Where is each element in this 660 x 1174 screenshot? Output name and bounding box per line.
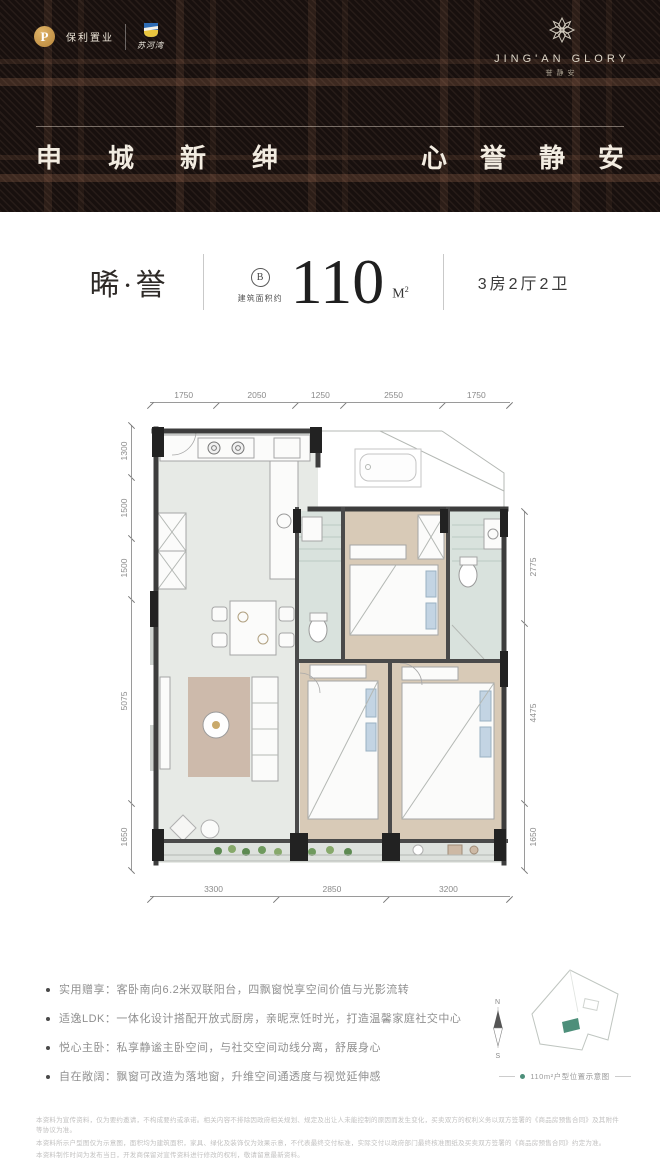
title-divider: [443, 254, 444, 310]
dim-label: 5075: [119, 692, 129, 711]
dim-label: 2550: [344, 390, 442, 400]
slogan-left: 申城新绅: [36, 138, 324, 175]
dim-label: 1650: [119, 827, 129, 846]
site-miniplan: N S 110m²户型位置示意图: [478, 952, 652, 1082]
feature-text: 悦心主卧：私享静谧主卧空间，与社交空间动线分离，舒展身心: [59, 1041, 381, 1056]
bullet-icon: [46, 1017, 50, 1021]
disclaimer-line: 本资料为宣传资料，仅为要约邀请，不构成要约或承诺。相关内容不排除因政府相关规划、…: [36, 1116, 624, 1137]
disclaimer: 本资料为宣传资料，仅为要约邀请，不构成要约或承诺。相关内容不排除因政府相关规划、…: [36, 1116, 624, 1164]
title-divider: [203, 254, 204, 310]
chair: [279, 633, 294, 647]
dims-top: 1750 2050 1250 2550 1750: [150, 387, 510, 403]
dim-label: 1750: [443, 390, 510, 400]
compass-icon: N S: [494, 999, 503, 1060]
feature-item: 实用赠享：客卧南向6.2米双联阳台，四飘窗悦享空间价值与光影流转: [46, 983, 476, 998]
partner-logo-label: 苏河湾: [137, 40, 164, 51]
bedroom-master: [400, 663, 494, 819]
features-list: 实用赠享：客卧南向6.2米双联阳台，四飘窗悦享空间价值与光影流转 适逸LDK：一…: [46, 983, 476, 1098]
chair: [279, 607, 294, 621]
disclaimer-line: 本资料制作时间为发布当日，开发商保留对宣传资料进行修改的权利，敬请留意最新资料。: [36, 1151, 624, 1161]
poly-logo-label: 保利置业: [66, 29, 114, 44]
vanity: [302, 517, 322, 541]
layout-spec: 3房2厅2卫: [478, 270, 571, 294]
chair: [212, 607, 227, 621]
feature-text: 适逸LDK：一体化设计搭配开放式厨房，亲昵烹饪时光，打造温馨家庭社交中心: [59, 1012, 461, 1027]
dim-label: 2050: [217, 390, 296, 400]
site-plan-svg: N S: [480, 952, 650, 1064]
medallion-icon: [548, 16, 576, 44]
area-label: 建筑面积约: [238, 293, 283, 304]
slogan-right: 心誉静安: [421, 138, 657, 175]
dim-label: 2775: [528, 558, 538, 577]
brand-name: JING'AN GLORY: [492, 53, 632, 65]
dim-label: 1750: [150, 390, 217, 400]
caption-text: 110m²户型位置示意图: [530, 1071, 609, 1082]
title-row: 晞·誉 B 建筑面积约 110 M2 3房2厅2卫: [0, 246, 660, 318]
shield-icon: [143, 22, 159, 38]
dim-label: 3200: [387, 884, 510, 894]
dims-right: 2775 4475 1650: [524, 511, 540, 870]
dim-label: 1300: [119, 442, 129, 461]
dim-label: 1250: [296, 390, 344, 400]
dim-label: 4475: [528, 704, 538, 723]
site-outline: [532, 970, 618, 1050]
feature-item: 自在敞阔：飘窗可改造为落地窗，升维空间通透度与视觉延伸感: [46, 1070, 476, 1085]
disclaimer-line: 本资料所示户型图仅为示意图，面积均为建筑面积，家具、绿化及装饰仅为效果示意，不代…: [36, 1139, 624, 1149]
brand-divider: [125, 24, 126, 50]
area-group: B 建筑面积约 110 M2: [238, 253, 409, 312]
dim-label: 1650: [528, 827, 538, 846]
product-name: 晞·誉: [90, 260, 169, 304]
floorplan-area: 1750 2050 1250 2550 1750 1300 1500 1500 …: [0, 375, 660, 935]
bullet-icon: [46, 1075, 50, 1079]
dresser: [310, 665, 366, 678]
bathtub: [360, 454, 416, 481]
dining-table: [230, 601, 276, 655]
void-area: [318, 431, 504, 509]
bedroom-middle: [300, 665, 378, 819]
pouf: [201, 820, 219, 838]
bullet-icon: [46, 1046, 50, 1050]
svg-text:N: N: [495, 999, 500, 1006]
dims-left: 1300 1500 1500 5075 1650: [116, 425, 132, 870]
slogan-row: 申城新绅 心誉静安: [36, 126, 624, 175]
toilet-icon: [309, 618, 327, 642]
sink: [274, 438, 300, 458]
feature-text: 自在敞阔：飘窗可改造为落地窗，升维空间通透度与视觉延伸感: [59, 1070, 381, 1085]
brand-name-cn: 誉静安: [492, 68, 632, 78]
dim-label: 2850: [277, 884, 387, 894]
area-unit: M2: [392, 285, 408, 303]
legend-dot-icon: [520, 1074, 525, 1079]
caption-rule: [615, 1076, 631, 1077]
dresser: [350, 545, 406, 559]
stove-icon: [198, 438, 254, 458]
dim-label: 1500: [119, 498, 129, 517]
brand-right: JING'AN GLORY 誉静安: [492, 16, 632, 78]
feature-item: 悦心主卧：私享静谧主卧空间，与社交空间动线分离，舒展身心: [46, 1041, 476, 1056]
miniplan-caption: 110m²户型位置示意图: [478, 1071, 652, 1082]
vanity: [484, 519, 502, 549]
dim-label: 3300: [150, 884, 277, 894]
bullet-icon: [46, 988, 50, 992]
dim-label: 1500: [119, 559, 129, 578]
chair: [212, 633, 227, 647]
svg-text:S: S: [496, 1053, 501, 1060]
tv-cabinet: [160, 677, 170, 769]
toilet-icon: [459, 563, 477, 587]
unit-badge: B: [251, 268, 270, 287]
desk: [402, 667, 458, 680]
feature-text: 实用赠享：客卧南向6.2米双联阳台，四飘窗悦享空间价值与光影流转: [59, 983, 409, 998]
partner-logo: 苏河湾: [137, 22, 164, 51]
caption-rule: [499, 1076, 515, 1077]
poly-logo-icon: P: [34, 26, 55, 47]
area-value: 110: [291, 253, 385, 312]
bed: [350, 565, 438, 635]
dims-bottom: 3300 2850 3200: [150, 881, 510, 897]
header-banner: P 保利置业 苏河湾 JING'AN: [0, 0, 660, 212]
floorplan-drawing: [150, 425, 510, 870]
brand-left: P 保利置业 苏河湾: [34, 22, 164, 51]
feature-item: 适逸LDK：一体化设计搭配开放式厨房，亲昵烹饪时光，打造温馨家庭社交中心: [46, 1012, 476, 1027]
